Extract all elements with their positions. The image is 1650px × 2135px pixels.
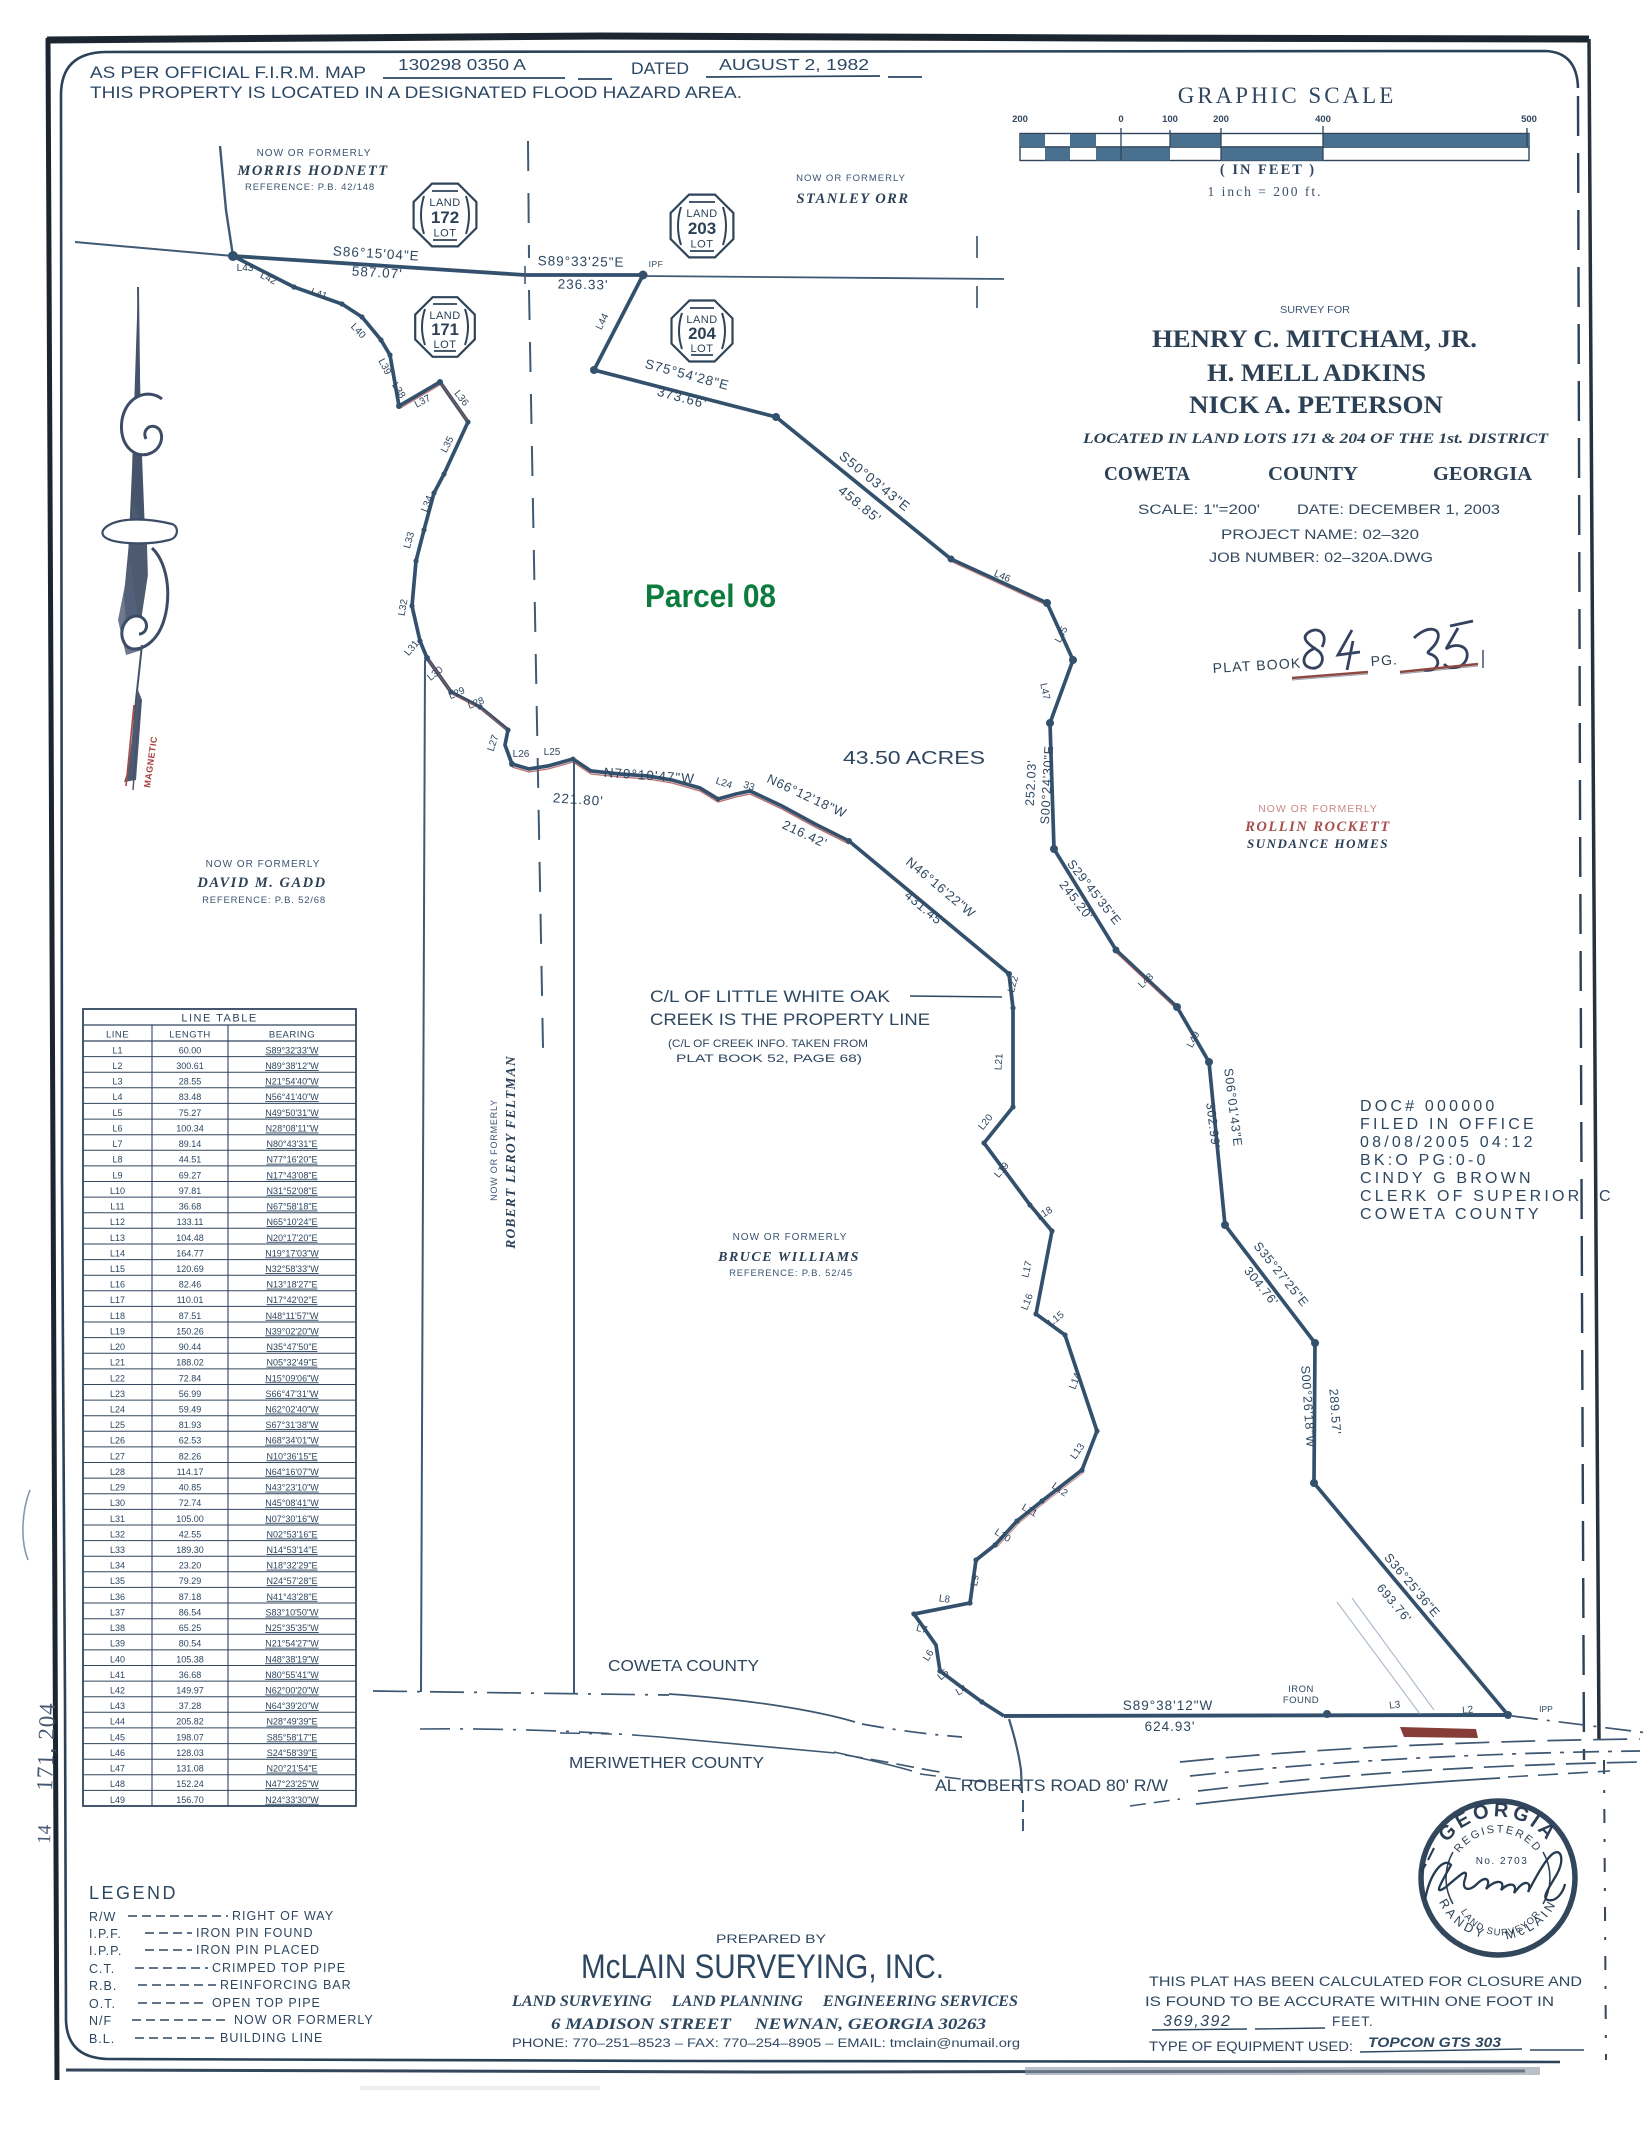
svg-text:N64°16'07"W: N64°16'07"W: [265, 1467, 319, 1477]
svg-text:CREEK IS THE PROPERTY LINE: CREEK IS THE PROPERTY LINE: [650, 1011, 930, 1029]
svg-text:L33: L33: [110, 1545, 125, 1555]
svg-text:83.48: 83.48: [179, 1092, 202, 1102]
svg-text:252.03': 252.03': [1023, 759, 1039, 806]
svg-text:LOT: LOT: [691, 343, 714, 355]
svg-text:36.68: 36.68: [179, 1202, 202, 1212]
svg-text:90.44: 90.44: [179, 1342, 202, 1352]
svg-text:BUILDING LINE: BUILDING LINE: [220, 2031, 323, 2045]
svg-text:37.28: 37.28: [179, 1701, 202, 1711]
svg-text:69.27: 69.27: [179, 1170, 202, 1180]
svg-text:L24: L24: [110, 1405, 125, 1415]
svg-text:IRON: IRON: [1288, 1684, 1314, 1695]
svg-text:N24°57'28"E: N24°57'28"E: [266, 1576, 317, 1586]
svg-text:86.54: 86.54: [179, 1608, 202, 1618]
svg-text:L45: L45: [110, 1732, 125, 1742]
svg-text:PROJECT NAME: 02–320: PROJECT NAME: 02–320: [1221, 527, 1419, 542]
svg-text:(C/L OF CREEK INFO. TAKEN FROM: (C/L OF CREEK INFO. TAKEN FROM: [668, 1038, 868, 1050]
svg-text:N80°43'31"E: N80°43'31"E: [266, 1139, 317, 1149]
svg-text:L30: L30: [110, 1498, 125, 1508]
svg-text:L34: L34: [110, 1561, 125, 1571]
svg-text:IPP: IPP: [1539, 1704, 1553, 1714]
svg-text:172: 172: [431, 208, 459, 227]
svg-text:MERIWETHER COUNTY: MERIWETHER COUNTY: [569, 1755, 764, 1772]
svg-text:REFERENCE: P.B. 42/148: REFERENCE: P.B. 42/148: [245, 182, 375, 193]
svg-text:L28: L28: [110, 1467, 125, 1477]
svg-text:L21: L21: [110, 1358, 125, 1368]
svg-text:NOW OR FORMERLY: NOW OR FORMERLY: [206, 859, 321, 870]
svg-text:IRON PIN PLACED: IRON PIN PLACED: [196, 1943, 320, 1957]
svg-text:400: 400: [1315, 114, 1331, 125]
svg-text:L4: L4: [112, 1092, 122, 1102]
svg-text:LOCATED IN LAND LOTS 171 & 204: LOCATED IN LAND LOTS 171 & 204 OF THE 1s…: [1082, 431, 1550, 447]
svg-text:I.P.P.: I.P.P.: [89, 1944, 122, 1958]
svg-text:GRAPHIC SCALE: GRAPHIC SCALE: [1178, 83, 1397, 108]
svg-text:40.85: 40.85: [179, 1483, 202, 1493]
svg-text:H. MELL ADKINS: H. MELL ADKINS: [1207, 360, 1426, 387]
svg-text:N14°53'14"E: N14°53'14"E: [266, 1545, 317, 1555]
svg-text:87.18: 87.18: [179, 1592, 202, 1602]
svg-text:N28°08'11"W: N28°08'11"W: [266, 1124, 319, 1134]
svg-text:N80°55'41"W: N80°55'41"W: [265, 1670, 319, 1680]
svg-text:198.07: 198.07: [176, 1732, 204, 1742]
svg-text:N24°33'30"W: N24°33'30"W: [265, 1795, 319, 1805]
svg-text:N/F: N/F: [89, 2014, 112, 2028]
svg-text:IRON PIN FOUND: IRON PIN FOUND: [196, 1926, 313, 1940]
svg-text:44.51: 44.51: [179, 1155, 202, 1165]
svg-text:L48: L48: [110, 1779, 125, 1789]
svg-text:N49°50'31"W: N49°50'31"W: [265, 1108, 319, 1118]
svg-text:N68°34'01"W: N68°34'01"W: [265, 1436, 319, 1446]
svg-text:L49: L49: [110, 1795, 125, 1805]
svg-text:ROLLIN ROCKETT: ROLLIN ROCKETT: [1244, 819, 1390, 835]
svg-text:MORRIS HODNETT: MORRIS HODNETT: [236, 163, 388, 179]
svg-text:156.70: 156.70: [176, 1795, 204, 1805]
svg-text:COUNTY: COUNTY: [1268, 463, 1359, 485]
svg-text:LOT: LOT: [434, 339, 457, 351]
svg-text:6 MADISON STREET NEWNAN, G: 6 MADISON STREET NEWNAN, GEORGIA 30263: [551, 2016, 986, 2033]
svg-text:N77°16'20"E: N77°16'20"E: [266, 1155, 317, 1165]
svg-text:200: 200: [1012, 114, 1028, 125]
svg-text:N17°42'02"E: N17°42'02"E: [266, 1295, 317, 1305]
svg-text:N67°58'18"E: N67°58'18"E: [266, 1202, 317, 1212]
svg-text:L27: L27: [110, 1451, 125, 1461]
svg-text:120.69: 120.69: [176, 1264, 204, 1274]
svg-text:08/08/2005 04:12: 08/08/2005 04:12: [1360, 1134, 1536, 1151]
svg-text:14: 14: [34, 1824, 56, 1844]
svg-text:500: 500: [1521, 114, 1537, 125]
svg-text:LOT: LOT: [691, 239, 714, 251]
svg-text:0: 0: [1118, 114, 1123, 125]
svg-text:N25°35'35"W: N25°35'35"W: [265, 1623, 319, 1633]
svg-text:300.61: 300.61: [176, 1061, 204, 1071]
svg-text:N35°47'50"E: N35°47'50"E: [266, 1342, 317, 1352]
svg-text:DOC# 000000: DOC# 000000: [1360, 1098, 1498, 1115]
svg-text:N15°09'06"W: N15°09'06"W: [265, 1373, 319, 1383]
svg-text:200: 200: [1213, 114, 1229, 125]
svg-text:N62°00'20"W: N62°00'20"W: [265, 1686, 319, 1696]
svg-text:L21: L21: [993, 1053, 1005, 1071]
svg-text:N65°10'24"E: N65°10'24"E: [266, 1217, 317, 1227]
svg-text:N19°17'03"W: N19°17'03"W: [265, 1248, 319, 1258]
svg-text:COWETA COUNTY: COWETA COUNTY: [1360, 1206, 1542, 1223]
svg-text:152.24: 152.24: [176, 1779, 204, 1789]
svg-text:97.81: 97.81: [179, 1186, 202, 1196]
svg-text:N89°38'12"W: N89°38'12"W: [265, 1061, 319, 1071]
svg-text:L11: L11: [110, 1202, 124, 1212]
svg-text:N17°43'08"E: N17°43'08"E: [266, 1170, 317, 1180]
svg-text:S89°32'33"W: S89°32'33"W: [265, 1045, 319, 1055]
svg-text:L40: L40: [110, 1654, 125, 1664]
svg-text:105.00: 105.00: [176, 1514, 204, 1524]
svg-text:L43: L43: [110, 1701, 125, 1711]
svg-text:L5: L5: [112, 1108, 122, 1118]
svg-text:171, 204: 171, 204: [32, 1702, 60, 1791]
svg-text:72.84: 72.84: [179, 1373, 202, 1383]
svg-text:S85°58'17"E: S85°58'17"E: [267, 1732, 318, 1742]
svg-text:S24°58'39"E: S24°58'39"E: [267, 1748, 318, 1758]
svg-text:189.30: 189.30: [176, 1545, 204, 1555]
svg-text:COWETA COUNTY: COWETA COUNTY: [608, 1658, 759, 1675]
svg-text:130298 0350 A: 130298 0350 A: [398, 57, 526, 74]
svg-text:1 inch = 200 ft.: 1 inch = 200 ft.: [1208, 184, 1323, 199]
svg-text:82.26: 82.26: [179, 1451, 202, 1461]
svg-text:L1: L1: [112, 1045, 122, 1055]
svg-text:L29: L29: [110, 1483, 125, 1493]
svg-text:REFERENCE: P.B. 52/68: REFERENCE: P.B. 52/68: [202, 895, 326, 906]
svg-text:110.01: 110.01: [177, 1295, 204, 1305]
svg-text:O.T.: O.T.: [89, 1997, 116, 2011]
svg-text:R.B.: R.B.: [89, 1979, 117, 1993]
svg-text:L41: L41: [110, 1670, 125, 1680]
svg-text:59.49: 59.49: [179, 1405, 202, 1415]
svg-text:N48°11'57"W: N48°11'57"W: [266, 1311, 319, 1321]
svg-text:BRUCE WILLIAMS: BRUCE WILLIAMS: [717, 1250, 860, 1265]
svg-text:42.55: 42.55: [179, 1529, 202, 1539]
svg-text:28.55: 28.55: [179, 1077, 202, 1087]
svg-text:L14: L14: [110, 1248, 125, 1258]
svg-text:N28°49'39"E: N28°49'39"E: [266, 1717, 317, 1727]
svg-text:AUGUST 2, 1982: AUGUST 2, 1982: [719, 57, 869, 74]
svg-text:PHONE: 770–251–8523 – FAX:: PHONE: 770–251–8523 – FAX: 770–254–8905 …: [512, 2038, 1020, 2050]
svg-text:L3: L3: [112, 1077, 122, 1087]
svg-text:S66°47'31"W: S66°47'31"W: [265, 1389, 319, 1399]
svg-text:L2: L2: [1462, 1704, 1475, 1716]
svg-text:RIGHT OF WAY: RIGHT OF WAY: [232, 1909, 334, 1923]
svg-text:L8: L8: [112, 1155, 122, 1165]
svg-text:62.53: 62.53: [179, 1436, 202, 1446]
svg-text:149.97: 149.97: [176, 1686, 204, 1696]
svg-text:LAND SURVEYING LAND PLANNI: LAND SURVEYING LAND PLANNING ENGINEERING…: [511, 1993, 1018, 2010]
svg-text:L10: L10: [110, 1186, 125, 1196]
svg-text:L13: L13: [110, 1233, 125, 1243]
svg-text:DATED: DATED: [631, 59, 689, 78]
svg-text:N62°02'40"W: N62°02'40"W: [265, 1405, 319, 1415]
svg-text:171: 171: [431, 321, 459, 339]
svg-text:L32: L32: [110, 1529, 125, 1539]
svg-text:L31: L31: [110, 1514, 125, 1524]
svg-text:L16: L16: [110, 1280, 125, 1290]
svg-text:80.54: 80.54: [179, 1639, 202, 1649]
svg-text:89.14: 89.14: [179, 1139, 202, 1149]
svg-text:S89°33'25"E: S89°33'25"E: [538, 253, 625, 270]
svg-text:TOPCON GTS 303: TOPCON GTS 303: [1368, 2035, 1502, 2050]
svg-text:BK:O PG:0-0: BK:O PG:0-0: [1360, 1152, 1489, 1169]
svg-text:164.77: 164.77: [176, 1248, 204, 1258]
svg-text:L3: L3: [1389, 1699, 1402, 1711]
svg-text:204: 204: [688, 325, 716, 343]
svg-text:203: 203: [688, 219, 716, 238]
svg-text:87.51: 87.51: [179, 1311, 202, 1321]
svg-text:LINE TABLE: LINE TABLE: [181, 1013, 257, 1025]
svg-text:N56°41'40"W: N56°41'40"W: [265, 1092, 319, 1102]
svg-text:NICK A. PETERSON: NICK A. PETERSON: [1189, 392, 1443, 419]
svg-text:82.46: 82.46: [179, 1280, 202, 1290]
svg-text:43.50 ACRES: 43.50 ACRES: [843, 747, 985, 768]
svg-text:NOW OR FORMERLY: NOW OR FORMERLY: [733, 1232, 848, 1243]
svg-text:L43: L43: [237, 263, 254, 274]
svg-text:SCALE: 1"=200': SCALE: 1"=200': [1138, 502, 1260, 517]
svg-text:B.L.: B.L.: [89, 2032, 115, 2046]
svg-text:FILED IN OFFICE: FILED IN OFFICE: [1360, 1116, 1537, 1133]
svg-text:CRIMPED TOP PIPE: CRIMPED TOP PIPE: [212, 1961, 346, 1975]
svg-text:236.33': 236.33': [558, 277, 609, 293]
svg-text:100: 100: [1162, 114, 1178, 125]
svg-text:36.68: 36.68: [179, 1670, 202, 1680]
svg-text:NOW OR FORMERLY: NOW OR FORMERLY: [796, 173, 906, 184]
svg-text:N02°53'16"E: N02°53'16"E: [266, 1529, 317, 1539]
svg-text:S83°10'50"W: S83°10'50"W: [265, 1608, 319, 1618]
svg-text:STANLEY ORR: STANLEY ORR: [796, 191, 909, 207]
svg-text:56.99: 56.99: [179, 1389, 202, 1399]
svg-text:L39: L39: [110, 1639, 125, 1649]
svg-text:N47°23'25"W: N47°23'25"W: [265, 1779, 319, 1789]
svg-text:I.P.F.: I.P.F.: [89, 1927, 122, 1941]
svg-text:JOB NUMBER: 02–320A.DWG: JOB NUMBER: 02–320A.DWG: [1209, 550, 1433, 565]
svg-text:REFERENCE: P.B. 52/45: REFERENCE: P.B. 52/45: [729, 1268, 853, 1279]
svg-text:N32°58'33"W: N32°58'33"W: [265, 1264, 319, 1274]
svg-text:FEET.: FEET.: [1332, 2014, 1374, 2029]
svg-text:N13°18'27"E: N13°18'27"E: [266, 1280, 317, 1290]
svg-text:N45°08'41"W: N45°08'41"W: [265, 1498, 319, 1508]
svg-text:PLAT BOOK 52, PAGE 68): PLAT BOOK 52, PAGE 68): [676, 1053, 862, 1065]
svg-text:IPF: IPF: [649, 259, 664, 269]
svg-text:McLAIN SURVEYING, INC.: McLAIN SURVEYING, INC.: [581, 1948, 944, 1986]
svg-text:L44: L44: [110, 1717, 125, 1727]
svg-text:75.27: 75.27: [179, 1108, 202, 1118]
svg-text:GEORGIA: GEORGIA: [1433, 463, 1533, 485]
svg-text:LEGEND: LEGEND: [89, 1883, 178, 1903]
svg-text:NOW OR FORMERLY: NOW OR FORMERLY: [234, 2013, 374, 2027]
svg-text:L22: L22: [110, 1373, 125, 1383]
svg-text:COWETA: COWETA: [1104, 463, 1191, 485]
svg-text:THIS PLAT HAS BEEN CALCULATED: THIS PLAT HAS BEEN CALCULATED FOR CLOSUR…: [1149, 1974, 1582, 1989]
svg-text:60.00: 60.00: [179, 1045, 202, 1055]
svg-text:L17: L17: [110, 1295, 125, 1305]
svg-text:150.26: 150.26: [176, 1326, 204, 1336]
svg-text:L20: L20: [110, 1342, 125, 1352]
svg-text:ROBERT LEROY FELTMAN: ROBERT LEROY FELTMAN: [503, 1055, 518, 1250]
svg-text:TYPE OF EQUIPMENT USED:: TYPE OF EQUIPMENT USED:: [1149, 2039, 1353, 2054]
svg-text:AL ROBERTS ROAD 80' R/W: AL ROBERTS ROAD 80' R/W: [935, 1777, 1168, 1795]
svg-text:PREPARED BY: PREPARED BY: [716, 1934, 826, 1946]
svg-text:NOW OR FORMERLY: NOW OR FORMERLY: [489, 1099, 499, 1201]
svg-text:N07°30'16"W: N07°30'16"W: [265, 1514, 319, 1524]
svg-text:L9: L9: [112, 1170, 122, 1180]
svg-text:128.03: 128.03: [176, 1748, 204, 1758]
svg-text:CINDY G BROWN: CINDY G BROWN: [1360, 1170, 1534, 1187]
svg-text:L12: L12: [110, 1217, 125, 1227]
svg-text:LENGTH: LENGTH: [169, 1030, 211, 1041]
svg-text:L35: L35: [110, 1576, 125, 1586]
svg-text:L36: L36: [110, 1592, 125, 1602]
svg-text:104.48: 104.48: [176, 1233, 204, 1243]
svg-text:( IN FEET ): ( IN FEET ): [1220, 162, 1316, 178]
svg-text:C: C: [1599, 1188, 1614, 1205]
svg-text:N20°17'20"E: N20°17'20"E: [266, 1233, 317, 1243]
svg-text:624.93': 624.93': [1145, 1719, 1196, 1734]
svg-text:N64°39'20"W: N64°39'20"W: [265, 1701, 319, 1711]
svg-text:S89°38'12"W: S89°38'12"W: [1123, 1698, 1214, 1713]
svg-text:N41°43'28"E: N41°43'28"E: [266, 1592, 317, 1602]
svg-text:OPEN TOP PIPE: OPEN TOP PIPE: [212, 1996, 321, 2010]
svg-text:NOW OR FORMERLY: NOW OR FORMERLY: [257, 148, 372, 159]
svg-text:LOT: LOT: [434, 228, 457, 240]
svg-text:NOW OR FORMERLY: NOW OR FORMERLY: [1258, 803, 1378, 815]
svg-text:Parcel 08: Parcel 08: [645, 578, 776, 614]
svg-text:L42: L42: [110, 1686, 125, 1696]
svg-text:72.74: 72.74: [179, 1498, 202, 1508]
svg-text:SURVEY FOR: SURVEY FOR: [1280, 304, 1350, 316]
svg-text:N31°52'08"E: N31°52'08"E: [266, 1186, 317, 1196]
svg-text:LINE: LINE: [106, 1030, 129, 1041]
svg-text:No. 2703: No. 2703: [1476, 1856, 1529, 1867]
svg-text:SUNDANCE HOMES: SUNDANCE HOMES: [1247, 836, 1389, 851]
svg-text:81.93: 81.93: [179, 1420, 202, 1430]
svg-text:L46: L46: [110, 1748, 125, 1758]
svg-text:L15: L15: [110, 1264, 125, 1274]
svg-text:100.34: 100.34: [176, 1124, 204, 1134]
svg-text:188.02: 188.02: [176, 1358, 204, 1368]
svg-text:L2: L2: [112, 1061, 122, 1071]
svg-text:DATE: DECEMBER 1, 2003: DATE: DECEMBER 1, 2003: [1297, 502, 1500, 517]
svg-text:L26: L26: [110, 1436, 125, 1446]
svg-text:L37: L37: [110, 1608, 125, 1618]
svg-text:C/L OF LITTLE WHITE OAK: C/L OF LITTLE WHITE OAK: [650, 988, 890, 1006]
svg-text:L19: L19: [110, 1326, 125, 1336]
svg-text:114.17: 114.17: [177, 1467, 204, 1477]
svg-text:L23: L23: [110, 1389, 125, 1399]
svg-text:79.29: 79.29: [179, 1576, 202, 1586]
svg-text:L25: L25: [110, 1420, 125, 1430]
svg-text:C.T.: C.T.: [89, 1962, 115, 1976]
svg-text:L26: L26: [513, 749, 530, 760]
svg-text:BEARING: BEARING: [269, 1030, 315, 1041]
svg-text:23.20: 23.20: [179, 1561, 202, 1571]
svg-text:L7: L7: [112, 1139, 122, 1149]
svg-text:REINFORCING BAR: REINFORCING BAR: [220, 1978, 352, 1992]
svg-text:DAVID M. GADD: DAVID M. GADD: [196, 875, 326, 891]
svg-text:65.25: 65.25: [179, 1623, 202, 1633]
svg-text:587.07': 587.07': [351, 263, 403, 281]
svg-text:L6: L6: [112, 1124, 122, 1134]
svg-text:131.08: 131.08: [176, 1764, 204, 1774]
svg-text:N39°02'20"W: N39°02'20"W: [265, 1326, 319, 1336]
svg-text:FOUND: FOUND: [1283, 1695, 1319, 1706]
svg-text:N48°38'19"W: N48°38'19"W: [265, 1654, 319, 1664]
svg-text:N20°21'54"E: N20°21'54"E: [266, 1764, 317, 1774]
svg-text:105.38: 105.38: [176, 1654, 204, 1664]
svg-text:S67°31'38"W: S67°31'38"W: [265, 1420, 319, 1430]
svg-text:N21°54'27"W: N21°54'27"W: [265, 1639, 319, 1649]
svg-text:N18°32'29"E: N18°32'29"E: [266, 1561, 317, 1571]
svg-text:AS PER OFFICIAL F.I.R.M. MAP: AS PER OFFICIAL F.I.R.M. MAP: [90, 63, 366, 82]
svg-text:N21°54'40"W: N21°54'40"W: [265, 1077, 319, 1087]
svg-text:R/W: R/W: [89, 1910, 116, 1924]
svg-text:L38: L38: [110, 1623, 125, 1633]
svg-text:L18: L18: [110, 1311, 125, 1321]
svg-text:L25: L25: [544, 747, 561, 758]
svg-text:205.82: 205.82: [176, 1717, 204, 1727]
svg-text:N10°36'15"E: N10°36'15"E: [266, 1451, 317, 1461]
svg-text:HENRY C. MITCHAM, JR.: HENRY C. MITCHAM, JR.: [1152, 326, 1477, 353]
svg-text:133.11: 133.11: [177, 1217, 204, 1227]
svg-text:L8: L8: [938, 1593, 951, 1606]
svg-text:CLERK OF SUPERIOR: CLERK OF SUPERIOR: [1360, 1188, 1582, 1205]
svg-text:L47: L47: [110, 1764, 125, 1774]
svg-text:THIS PROPERTY IS LOCATED IN A: THIS PROPERTY IS LOCATED IN A DESIGNATED…: [90, 83, 742, 102]
svg-text:N05°32'49"E: N05°32'49"E: [266, 1358, 317, 1368]
svg-text:N43°23'10"W: N43°23'10"W: [265, 1483, 319, 1493]
svg-text:PG.: PG.: [1370, 651, 1398, 669]
svg-text:369,392: 369,392: [1163, 2013, 1231, 2030]
svg-text:IS FOUND TO BE ACCURATE WITHI: IS FOUND TO BE ACCURATE WITHIN ONE FOOT …: [1145, 1994, 1554, 2009]
